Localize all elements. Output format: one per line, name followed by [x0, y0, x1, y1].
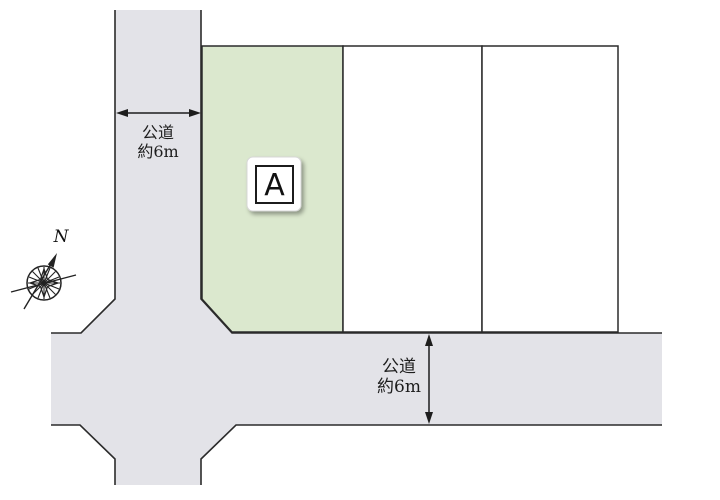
parcel-a-label: A	[264, 168, 285, 203]
road-width-label-bottom-line2: 約6m	[377, 377, 421, 397]
north-label: N	[53, 227, 70, 247]
parcel-c	[482, 46, 618, 332]
compass-rose: N	[11, 227, 76, 309]
site-plan-svg: 公道 約6m 公道 約6m A	[0, 0, 720, 500]
road-width-label-top-line1: 公道	[142, 123, 174, 142]
parcel-b	[343, 46, 482, 332]
road-width-label-top-line2: 約6m	[137, 142, 178, 161]
road-width-label-bottom-line1: 公道	[382, 357, 416, 377]
site-plan: 公道 約6m 公道 約6m A	[0, 0, 720, 500]
parcel-a-badge: A	[247, 157, 301, 211]
road-edge-right-bottom	[201, 425, 662, 485]
